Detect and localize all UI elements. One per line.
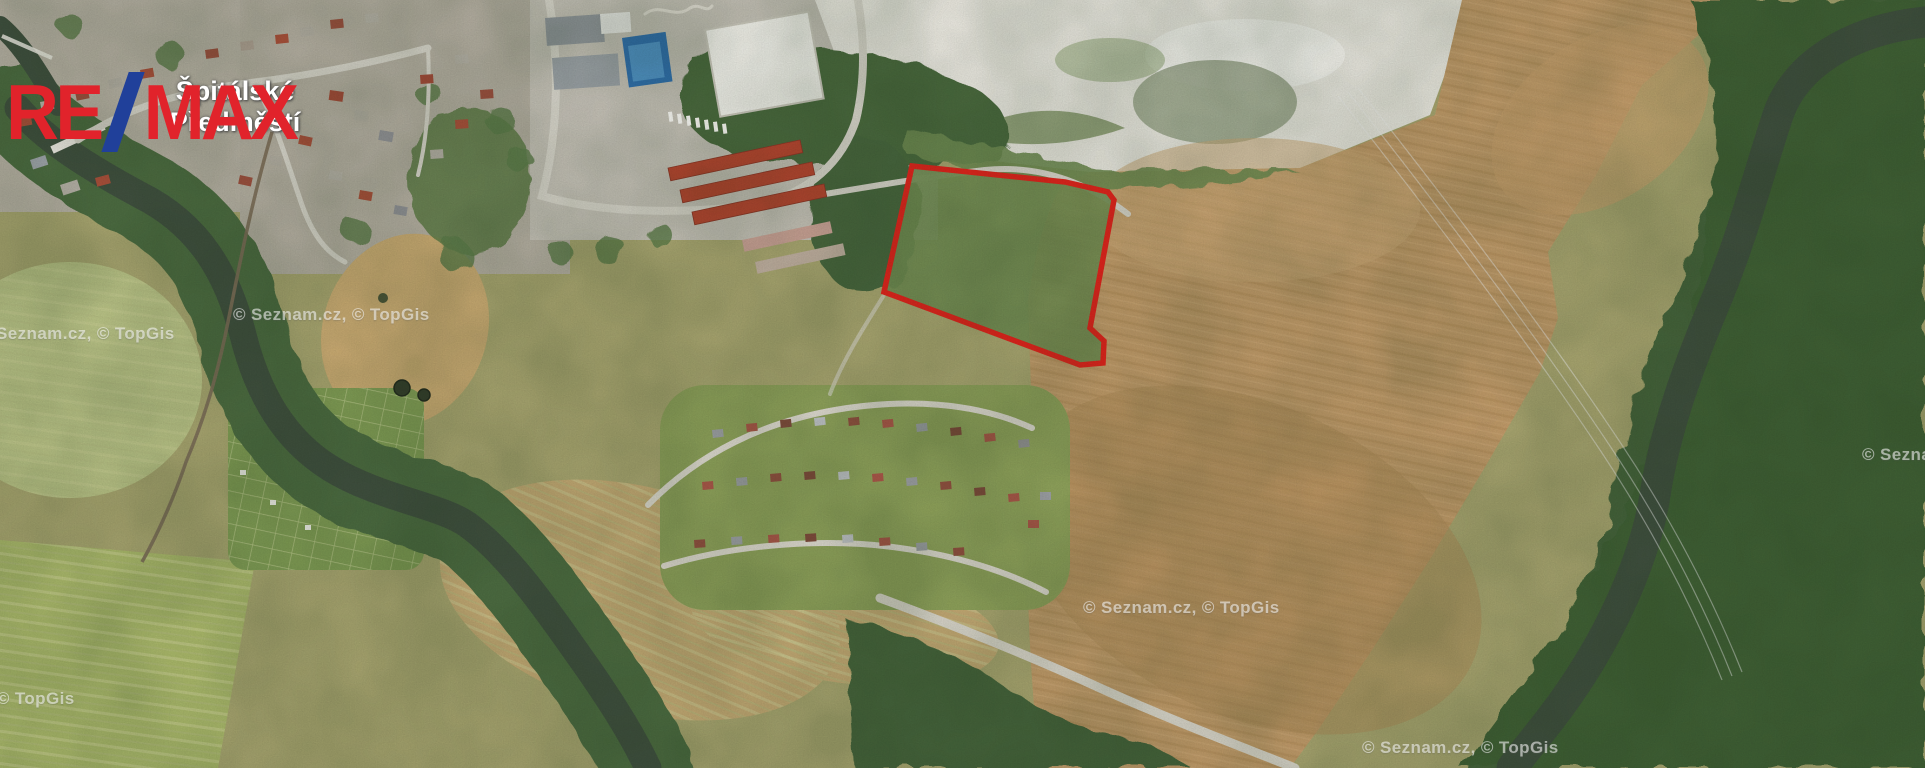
listing-screenshot: Špitálské Předměstí RE MAX © Seznam.cz, …: [0, 0, 1925, 768]
remax-logo-max: MAX: [144, 73, 296, 151]
remax-logo-re: RE: [6, 73, 100, 151]
remax-logo: RE MAX: [6, 72, 295, 152]
remax-slash: [102, 72, 145, 152]
